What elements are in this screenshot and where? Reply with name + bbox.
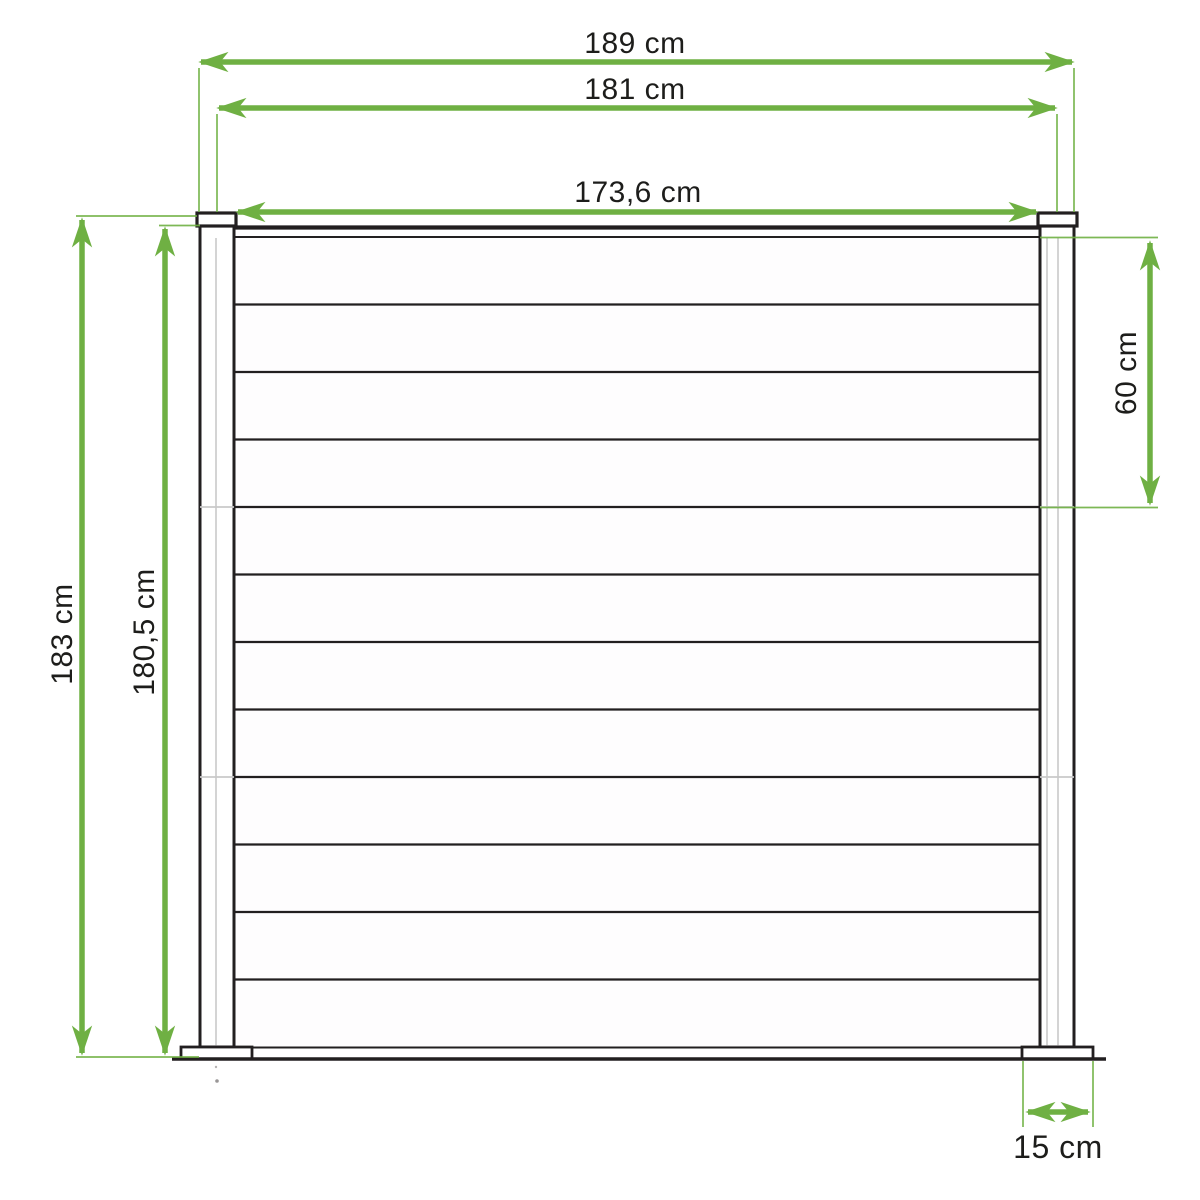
ground-speck xyxy=(215,1066,217,1068)
right-post xyxy=(1040,226,1074,1047)
fence-panel-body xyxy=(234,226,1040,1047)
label-section-height: 60 cm xyxy=(1110,331,1143,415)
fence-technical-drawing-page: 189 cm 181 cm 173,6 cm 183 cm 180,5 cm 6… xyxy=(0,0,1200,1200)
label-post-center-width: 181 cm xyxy=(584,73,685,106)
label-panel-width: 173,6 cm xyxy=(574,176,701,209)
right-post-cap xyxy=(1038,213,1077,226)
left-post-cap xyxy=(197,213,236,226)
label-base-plate-width: 15 cm xyxy=(1013,1129,1103,1165)
label-total-height: 183 cm xyxy=(46,583,79,684)
label-total-width: 189 cm xyxy=(584,27,685,60)
fence-technical-drawing: 189 cm 181 cm 173,6 cm 183 cm 180,5 cm 6… xyxy=(0,0,1200,1200)
left-post xyxy=(200,226,234,1047)
right-base-plate xyxy=(1022,1047,1093,1059)
ground-speck xyxy=(215,1079,219,1083)
label-panel-height: 180,5 cm xyxy=(128,568,161,695)
